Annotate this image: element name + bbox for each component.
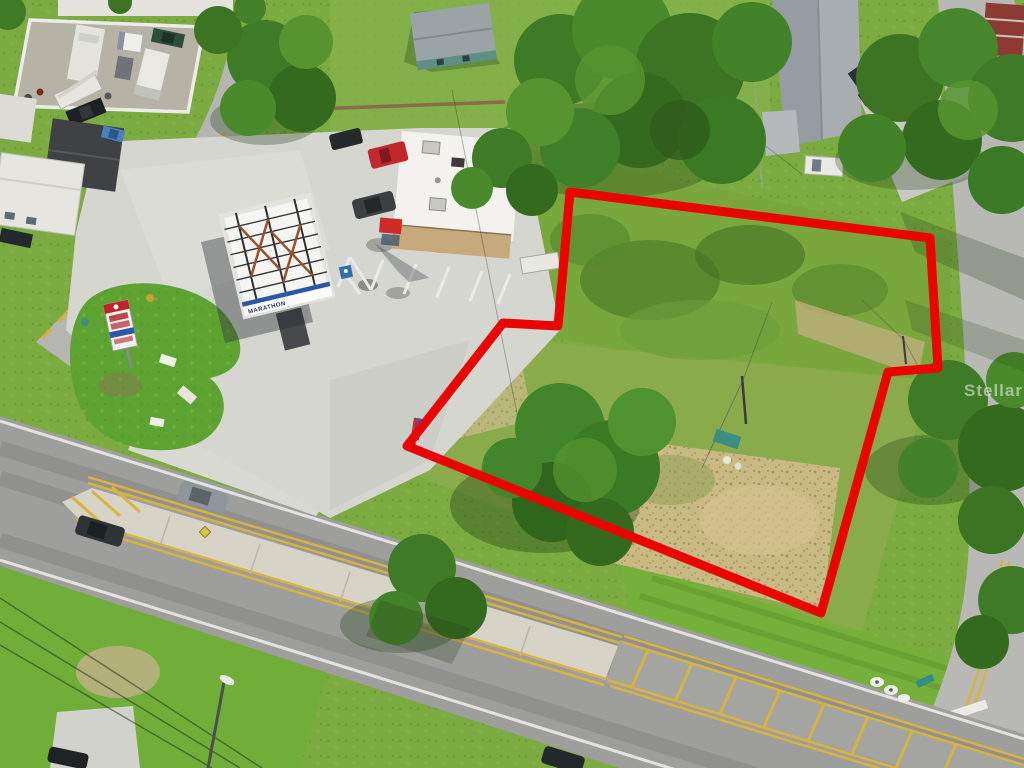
roof-vent: [451, 157, 465, 167]
watermark: Stellar MLS: [964, 381, 1024, 400]
storefront-glass: [381, 234, 400, 247]
handicap-space: [339, 265, 353, 279]
store-awning: [379, 217, 402, 234]
rooftop-ac-unit: [429, 198, 446, 211]
green-house: [404, 3, 500, 72]
aerial-photo-canvas: MARATHON: [0, 0, 1024, 768]
debris: [146, 294, 154, 302]
house-shed: [762, 110, 800, 156]
sign-island: [70, 283, 240, 450]
rooftop-ac-unit: [422, 141, 440, 154]
white-mobile-home: [0, 153, 85, 236]
debris: [81, 318, 89, 326]
aerial-photo: MARATHON: [0, 0, 1024, 768]
shed: [0, 93, 37, 142]
